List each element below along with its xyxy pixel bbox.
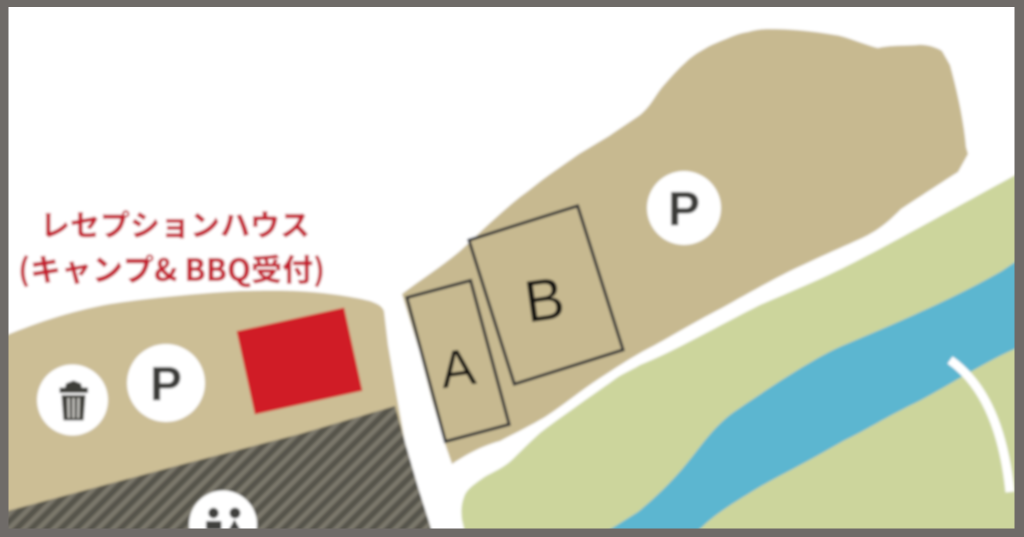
svg-text:P: P (668, 183, 700, 236)
svg-text:P: P (150, 358, 182, 411)
